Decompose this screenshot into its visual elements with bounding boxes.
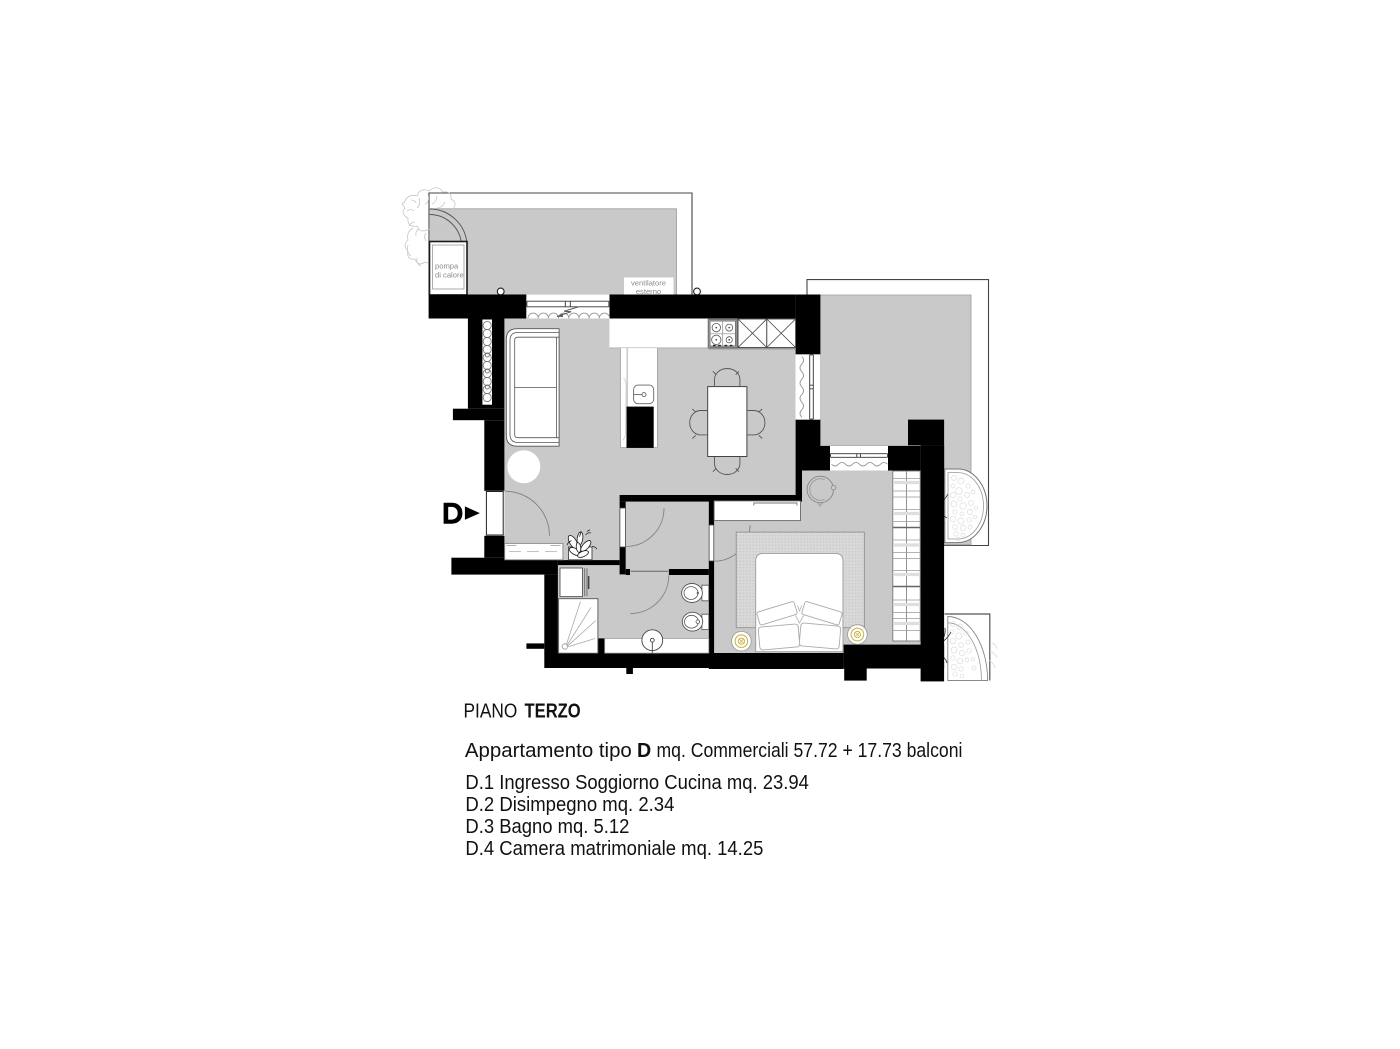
svg-text:D.3 Bagno mq. 5.12: D.3 Bagno mq. 5.12	[465, 816, 629, 838]
svg-text:PIANO: PIANO	[464, 700, 518, 722]
svg-text:D.2 Disimpegno mq. 2.34: D.2 Disimpegno mq. 2.34	[465, 794, 674, 816]
svg-text:D.4 Camera matrimoniale mq. 14: D.4 Camera matrimoniale mq. 14.25	[465, 838, 763, 860]
svg-text:D.1 Ingresso Soggiorno Cucina: D.1 Ingresso Soggiorno Cucina mq. 23.94	[465, 772, 809, 794]
svg-text:D: D	[637, 740, 651, 762]
svg-text:pompa: pompa	[435, 262, 459, 271]
svg-text:TERZO: TERZO	[525, 700, 581, 722]
svg-text:di calore: di calore	[435, 271, 464, 280]
svg-text:Appartamento tipo: Appartamento tipo	[465, 740, 632, 762]
svg-text:mq. Commerciali 57.72 + 17.73: mq. Commerciali 57.72 + 17.73 balconi	[657, 740, 963, 762]
